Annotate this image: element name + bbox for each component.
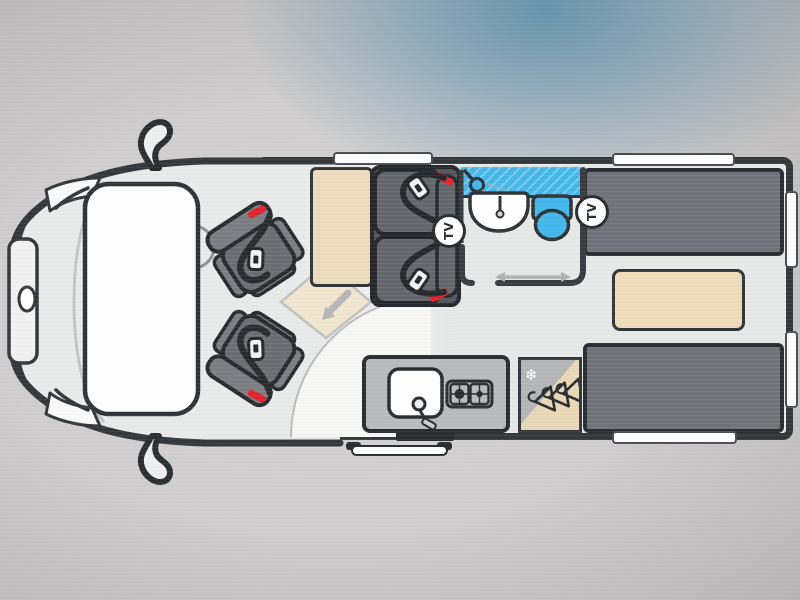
washroom <box>461 170 583 283</box>
sink-tap-lever <box>421 418 436 430</box>
shower-head-icon <box>471 179 484 192</box>
headrest <box>437 240 457 296</box>
kitchen-fittings <box>389 369 492 430</box>
swivel-seat-driver <box>199 196 311 307</box>
window-bar <box>785 331 798 408</box>
tv-badge: TV <box>432 214 466 248</box>
tv-badge-label: TV <box>442 222 456 240</box>
campervan-floorplan: ❄ <box>0 0 800 600</box>
tv-badge: TV <box>575 195 609 229</box>
detail-overlay <box>0 0 800 600</box>
tv-badge-label: TV <box>585 203 599 221</box>
entry-step <box>351 445 448 456</box>
basin-tap-knob <box>497 211 504 218</box>
window-bar <box>612 431 737 444</box>
window-bar <box>333 152 433 165</box>
window-bar <box>612 153 735 166</box>
swivel-seat-passenger <box>199 301 311 412</box>
two-burner-hob-icon <box>447 381 492 407</box>
sink-drain <box>413 398 425 410</box>
window-bar <box>785 191 798 268</box>
sliding-entry-door <box>396 430 454 441</box>
toilet-icon <box>536 211 569 240</box>
washroom-wall <box>462 247 472 283</box>
